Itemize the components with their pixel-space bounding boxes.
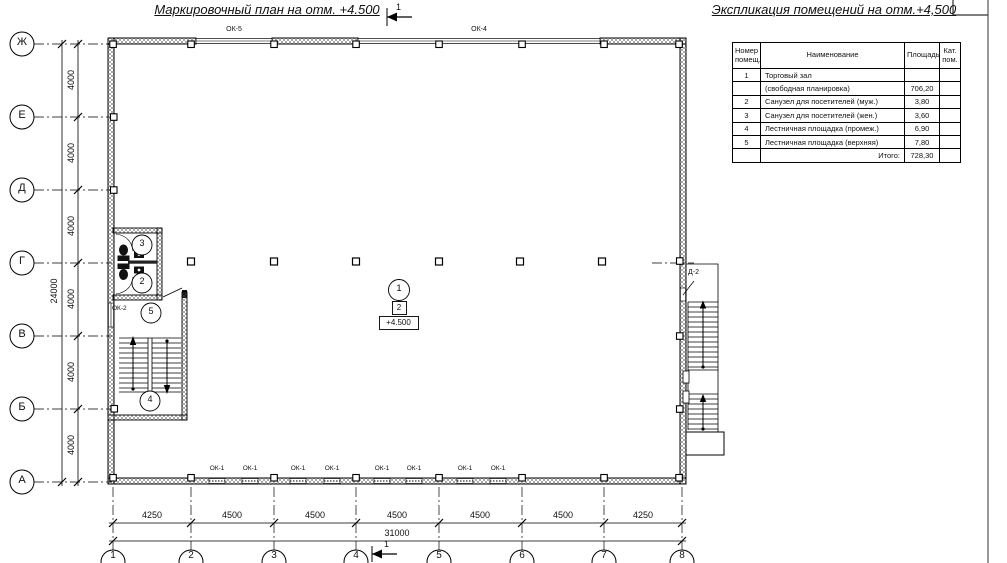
- window-label-ok5: ОК-5: [218, 26, 250, 33]
- dim-text: 4500: [207, 511, 257, 520]
- table-row: 5 Лестничная площадка (верхняя) 7,80: [733, 135, 961, 148]
- axis-row-label: Д: [10, 183, 34, 195]
- table-cell: [940, 82, 961, 95]
- table-cell: 706,20: [905, 82, 940, 95]
- section-mark-bottom-label: 1: [384, 540, 389, 549]
- table-cell: (свободная планировка): [761, 82, 905, 95]
- axis-col-label: 7: [592, 551, 616, 562]
- axis-row-label: Ж: [10, 37, 34, 49]
- axis-row-label: В: [10, 329, 34, 341]
- arrow-up-icon: [130, 336, 136, 345]
- table-cell: 3,80: [905, 95, 940, 108]
- window-label-ok1: ОК-1: [401, 466, 427, 473]
- cistern-icon: [118, 264, 130, 270]
- table-header: Номер помещ.: [733, 43, 761, 69]
- wall-columns: [110, 41, 683, 481]
- dim-text: 4500: [538, 511, 588, 520]
- arrow-down-icon: [164, 385, 170, 394]
- table-cell: 3: [733, 109, 761, 122]
- table-row: 4 Лестничная площадка (промеж.) 6,90: [733, 122, 961, 135]
- drawing-sheet: Маркировочный план на отм. +4.500 Экспли…: [0, 0, 1007, 563]
- axis-col-label: 3: [262, 551, 286, 562]
- level-mark: +4.500: [379, 319, 418, 327]
- table-cell: [905, 69, 940, 82]
- table-cell: 1: [733, 69, 761, 82]
- table-cell: Лестничная площадка (верхняя): [761, 135, 905, 148]
- table-total-label: Итого:: [761, 149, 905, 162]
- window-label-ok2: ОК-2: [112, 306, 127, 313]
- table-cell: [940, 149, 961, 162]
- table-header-row: Номер помещ. Наименование Площадь Кат. п…: [733, 43, 961, 69]
- explication-title: Экспликация помещений на отм.+4,500: [700, 3, 968, 17]
- door-label-d2: Д-2: [688, 269, 699, 276]
- table-row: Итого: 728,30: [733, 149, 961, 162]
- stair-arrows: [130, 336, 170, 394]
- room-number: 3: [132, 239, 152, 248]
- table-row: 2 Санузел для посетителей (муж.) 3,80: [733, 95, 961, 108]
- interior-stair: [119, 338, 181, 392]
- zone-mark: 2: [392, 304, 406, 312]
- toilet-icon: [119, 245, 128, 256]
- window-label-ok1: ОК-1: [204, 466, 230, 473]
- section-arrow-icon: [372, 550, 382, 559]
- cistern-icon: [118, 256, 130, 262]
- toilet-icon: [119, 269, 128, 280]
- dim-text: 4000: [66, 216, 76, 236]
- exterior-stair: [683, 264, 724, 455]
- dim-text: 4000: [66, 362, 76, 382]
- axis-col-label: 4: [344, 551, 368, 562]
- axis-col-label: 1: [101, 551, 125, 562]
- table-cell: Торговый зал: [761, 69, 905, 82]
- window-label-ok4: ОК-4: [463, 26, 495, 33]
- section-mark-top-label: 1: [396, 3, 401, 12]
- table-cell: 5: [733, 135, 761, 148]
- table-header: Кат. пом.: [940, 43, 961, 69]
- interior-columns: [188, 258, 606, 265]
- dim-total-text: 31000: [369, 529, 425, 538]
- window-label-ok1: ОК-1: [237, 466, 263, 473]
- axis-row-label: Г: [10, 256, 34, 268]
- table-cell: Санузел для посетителей (жен.): [761, 109, 905, 122]
- room-number: 2: [132, 277, 152, 286]
- window-label-ok1: ОК-1: [452, 466, 478, 473]
- table-cell: 4: [733, 122, 761, 135]
- axis-col-label: 6: [510, 551, 534, 562]
- dim-total-text: 24000: [49, 278, 59, 303]
- axis-row-label: А: [10, 475, 34, 487]
- window-label-ok1: ОК-1: [485, 466, 511, 473]
- window-label-ok1: ОК-1: [369, 466, 395, 473]
- table-header: Площадь: [905, 43, 940, 69]
- axis-row-label: Е: [10, 110, 34, 122]
- arrow-up-icon: [700, 394, 706, 402]
- table-cell: [940, 122, 961, 135]
- table-header: Наименование: [761, 43, 905, 69]
- table-cell: [733, 82, 761, 95]
- dim-text: 4500: [455, 511, 505, 520]
- axis-row-label: Б: [10, 402, 34, 414]
- table-row: 1 Торговый зал: [733, 69, 961, 82]
- window-label-ok1: ОК-1: [285, 466, 311, 473]
- table-cell: [940, 135, 961, 148]
- explication-table: Номер помещ. Наименование Площадь Кат. п…: [732, 42, 961, 163]
- dim-text: 4500: [372, 511, 422, 520]
- table-cell: [940, 69, 961, 82]
- dim-text: 4000: [66, 289, 76, 309]
- table-cell: Санузел для посетителей (муж.): [761, 95, 905, 108]
- dim-text: 4250: [618, 511, 668, 520]
- dim-text: 4500: [290, 511, 340, 520]
- dim-text: 4250: [127, 511, 177, 520]
- table-cell: 2: [733, 95, 761, 108]
- table-total-value: 728,30: [905, 149, 940, 162]
- room-number: 1: [389, 284, 409, 294]
- table-cell: [940, 95, 961, 108]
- table-row: (свободная планировка) 706,20: [733, 82, 961, 95]
- table-cell: [940, 109, 961, 122]
- dim-text: 4000: [66, 70, 76, 90]
- plan-title: Маркировочный план на отм. +4.500: [138, 3, 396, 17]
- axis-col-label: 8: [670, 551, 694, 562]
- table-cell: Лестничная площадка (промеж.): [761, 122, 905, 135]
- room-number: 5: [141, 307, 161, 316]
- room-number: 4: [140, 395, 160, 404]
- window-label-ok1: ОК-1: [319, 466, 345, 473]
- axis-col-label: 5: [427, 551, 451, 562]
- table-cell: [733, 149, 761, 162]
- dim-text: 4000: [66, 143, 76, 163]
- dim-text: 4000: [66, 435, 76, 455]
- table-cell: 6,90: [905, 122, 940, 135]
- table-cell: 7,80: [905, 135, 940, 148]
- axis-col-label: 2: [179, 551, 203, 562]
- door-leaf-room5: [163, 288, 182, 297]
- table-cell: 3,60: [905, 109, 940, 122]
- table-row: 3 Санузел для посетителей (жен.) 3,60: [733, 109, 961, 122]
